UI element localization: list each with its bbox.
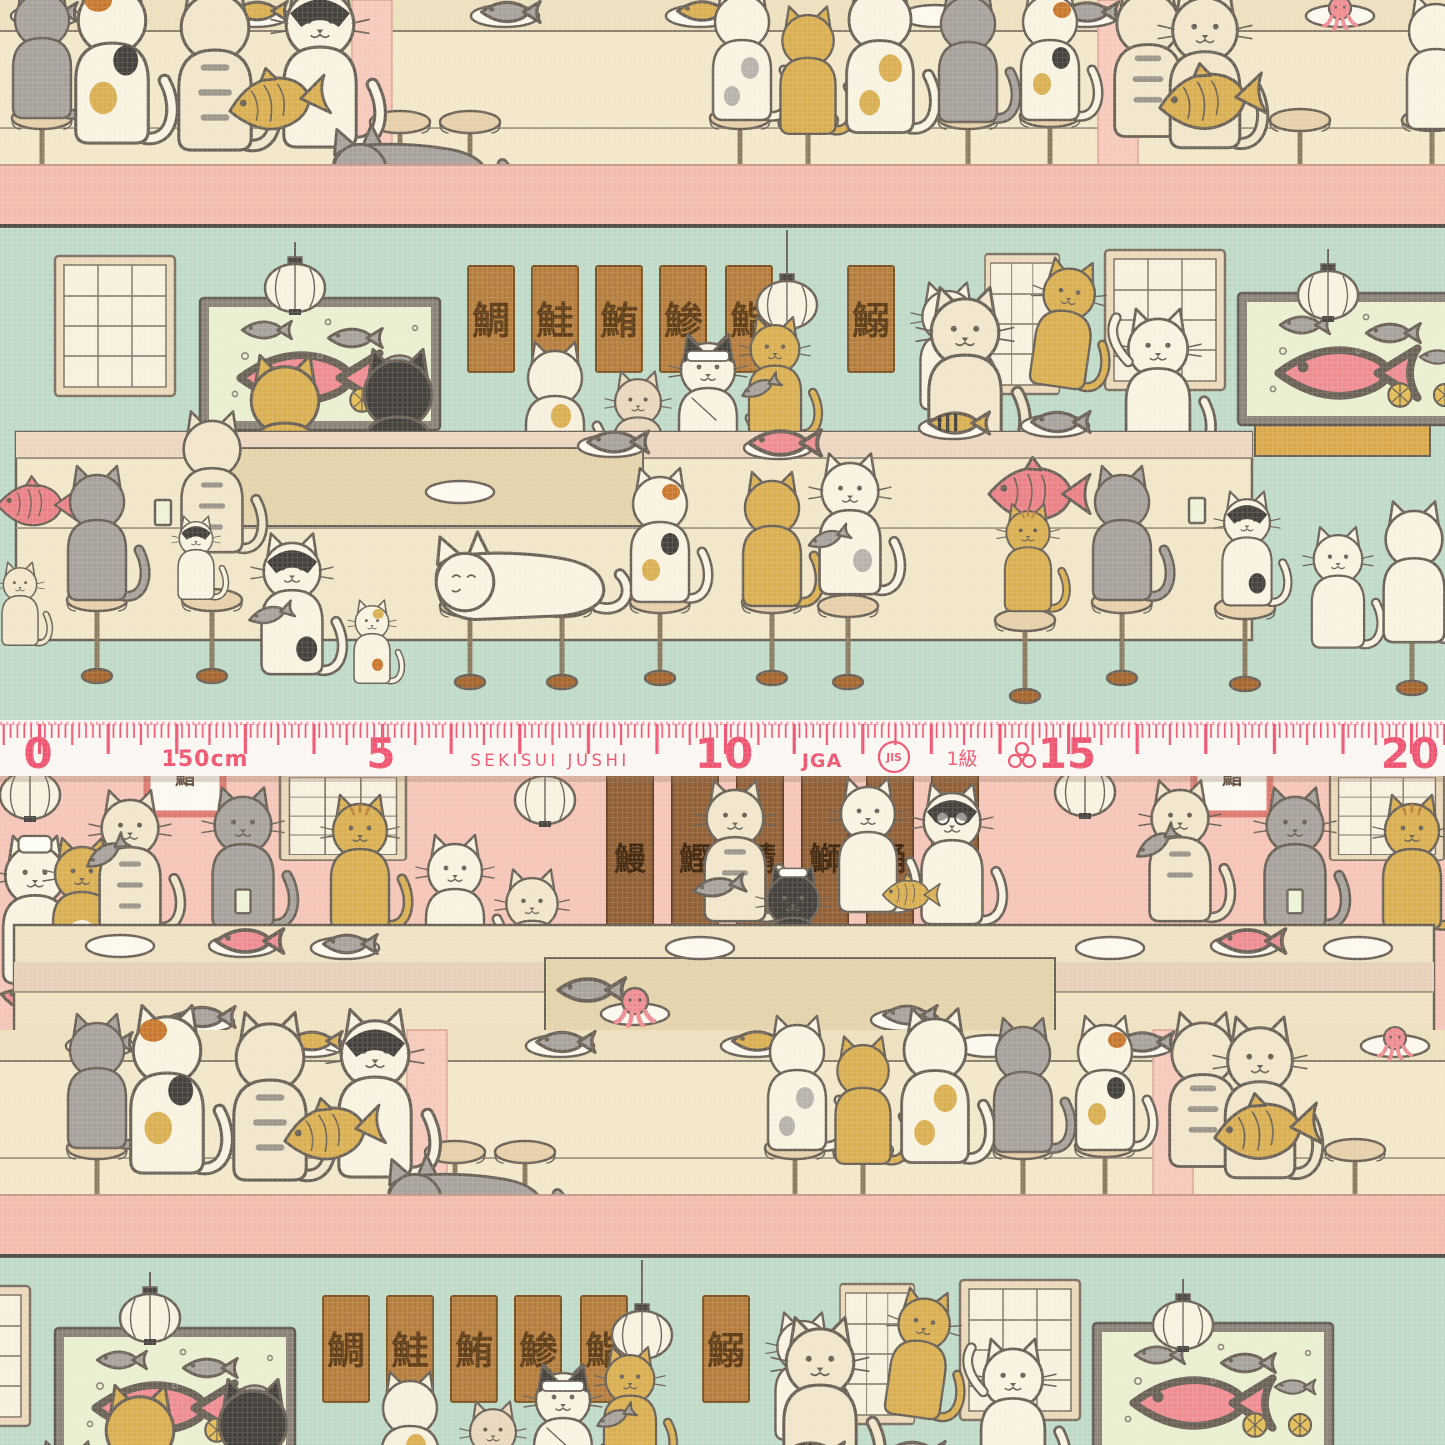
fabric-photo: 鯛 鮭 鮪 鯵 鮨 鰯 [0, 0, 1445, 1445]
fabric-illustration: 鯛 鮭 鮪 鯵 鮨 鰯 [0, 0, 1445, 1445]
fabric-texture-overlay [0, 0, 1445, 1445]
